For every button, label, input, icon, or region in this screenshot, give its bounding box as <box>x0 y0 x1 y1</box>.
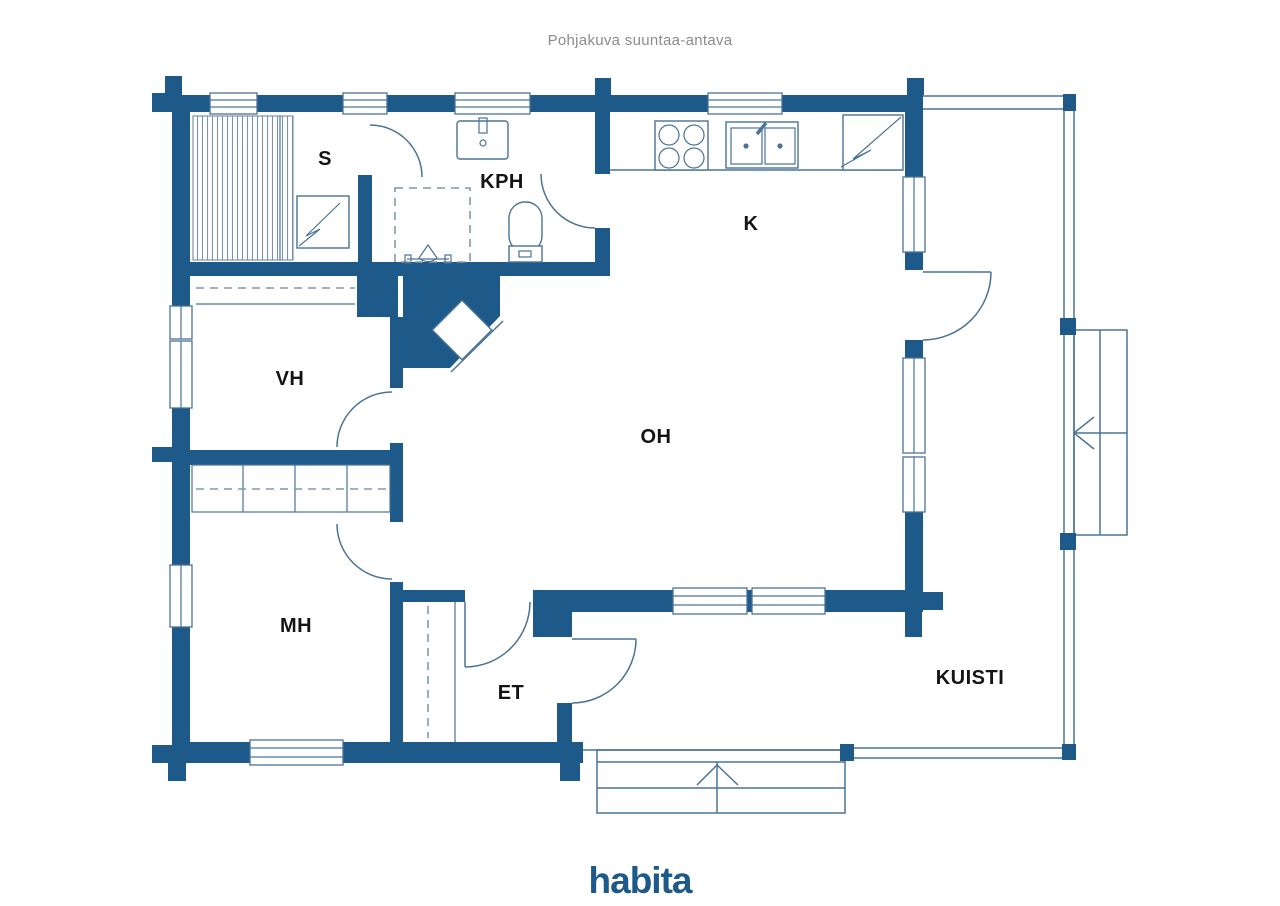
floor-plan-page: Pohjakuva suuntaa-antava <box>0 0 1280 906</box>
fridge-icon <box>841 115 903 170</box>
room-label-porch: KUISTI <box>936 667 1005 689</box>
room-label-sauna: S <box>318 148 332 170</box>
room-label-living: OH <box>641 426 672 448</box>
stove-burners-icon <box>655 121 708 170</box>
entrance-steps-icon <box>597 750 845 813</box>
kitchen-sink-icon <box>726 122 798 168</box>
bathroom-sink-icon <box>457 118 508 159</box>
room-label-bathroom: KPH <box>480 171 524 193</box>
fireplace <box>403 268 503 372</box>
door-swing-arcs <box>337 125 991 703</box>
room-label-entrance: ET <box>498 682 525 704</box>
room-label-kitchen: K <box>744 213 759 235</box>
sauna-bench-hatch <box>193 116 293 260</box>
shower-icon <box>395 188 470 263</box>
sauna-heater-icon <box>297 196 349 248</box>
room-label-closet: VH <box>276 368 305 390</box>
exterior-stairs-icon <box>1074 330 1127 535</box>
floor-plan-drawing: S KPH K VH OH MH ET KUISTI <box>0 0 1280 906</box>
room-label-bedroom: MH <box>280 615 312 637</box>
habita-logo: habita <box>0 860 1280 902</box>
toilet-icon <box>509 202 542 262</box>
room-labels: S KPH K VH OH MH ET KUISTI <box>276 148 1005 704</box>
